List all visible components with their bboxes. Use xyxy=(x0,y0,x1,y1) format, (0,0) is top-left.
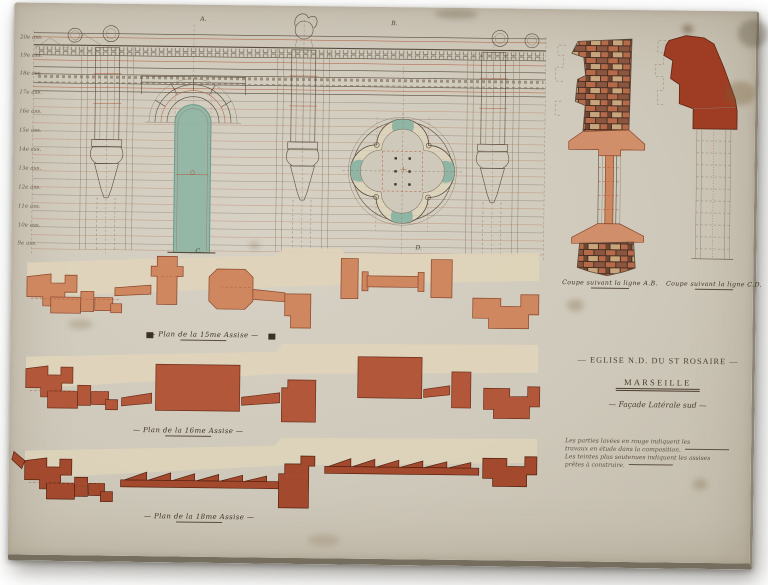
gargoyle-finial xyxy=(294,14,317,48)
svg-text:19e ass.: 19e ass. xyxy=(20,53,43,59)
plan-18-assise xyxy=(11,432,537,510)
lancet-window xyxy=(139,76,245,253)
quatrefoil-rose-window xyxy=(342,112,463,231)
photograph-of-drawing: 20e ass. 19e ass. 18e ass. 17e ass. 16e … xyxy=(0,0,768,585)
plan-15-caption: — Plan de la 15me Assise — xyxy=(128,330,278,342)
section-ab xyxy=(553,38,646,276)
svg-text:13e ass.: 13e ass. xyxy=(18,166,41,172)
svg-text:B.: B. xyxy=(390,20,397,27)
drawing-city: MARSEILLE xyxy=(558,376,758,388)
plan-15-assise xyxy=(26,245,539,343)
svg-text:17e ass.: 17e ass. xyxy=(19,90,42,96)
section-cd-caption: Coupe suivant la ligne C.D. xyxy=(649,280,768,291)
svg-text:16e ass.: 16e ass. xyxy=(19,109,42,115)
elevation-cornice xyxy=(33,25,546,97)
svg-text:20e ass.: 20e ass. xyxy=(19,35,43,41)
svg-text:9e ass.: 9e ass. xyxy=(17,241,36,247)
svg-text:18e ass.: 18e ass. xyxy=(20,71,43,77)
title-block: — EGLISE N.D. DU ST ROSAIRE — MARSEILLE … xyxy=(558,355,759,410)
svg-text:14e ass.: 14e ass. xyxy=(19,147,42,153)
section-cd xyxy=(653,35,738,259)
svg-text:12e ass.: 12e ass. xyxy=(18,185,41,191)
plan-18-caption: — Plan de la 18me Assise — xyxy=(124,512,274,524)
plan-16-assise xyxy=(25,339,540,425)
svg-text:D.: D. xyxy=(414,244,422,251)
svg-text:15e ass.: 15e ass. xyxy=(19,128,42,134)
drawing-title: — EGLISE N.D. DU ST ROSAIRE — xyxy=(558,355,758,366)
svg-text:C.: C. xyxy=(195,248,201,255)
svg-text:10e ass.: 10e ass. xyxy=(18,223,41,229)
svg-text:A.: A. xyxy=(199,16,206,23)
drawing-sheet: 20e ass. 19e ass. 18e ass. 17e ass. 16e … xyxy=(8,2,760,569)
legend-note: Les parties lavées en rouge indiquent le… xyxy=(565,437,757,471)
plan-16-caption: — Plan de la 16me Assise — xyxy=(113,426,263,438)
svg-text:11e ass.: 11e ass. xyxy=(18,204,41,210)
